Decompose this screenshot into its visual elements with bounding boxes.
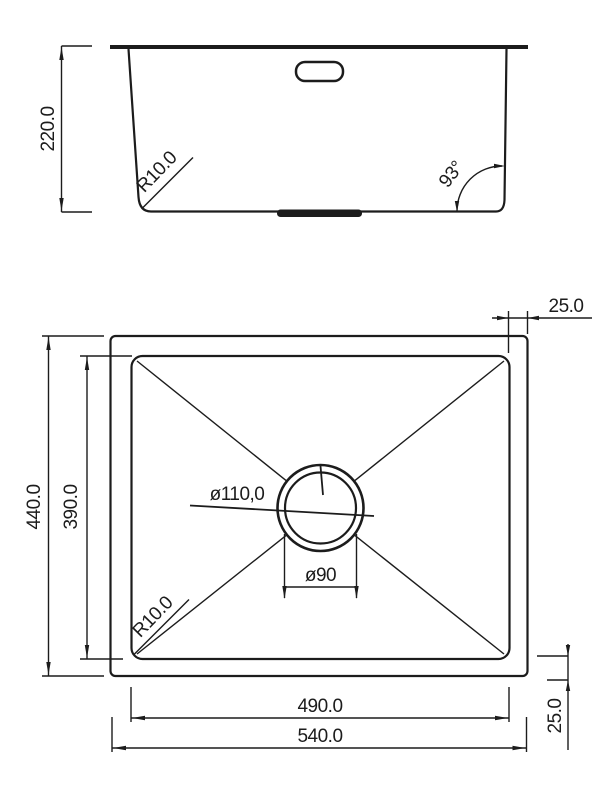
- arrowhead-down: [354, 586, 358, 599]
- arrowhead-right: [513, 746, 526, 750]
- plan-rim-offset-bottom-label: 25.0: [545, 699, 566, 734]
- side-view: 220.0 R10.0 93°: [38, 46, 528, 217]
- side-view-corner-radius-label: R10.0: [133, 148, 182, 197]
- arrowhead-right: [497, 316, 509, 320]
- arrowhead: [494, 164, 505, 168]
- diagonal-bottom-right: [354, 535, 504, 654]
- leader-line: [190, 506, 374, 517]
- plan-drain-center-tick: [321, 466, 324, 495]
- drawing-canvas: 220.0 R10.0 93°: [0, 0, 615, 800]
- plan-bowl-width-label: 490.0: [297, 696, 342, 717]
- plan-bowl-diagonals: [137, 361, 504, 654]
- plan-drain-outer-diameter-label: ø110,0: [210, 484, 265, 505]
- side-view-height-label: 220.0: [38, 106, 59, 151]
- plan-corner-radius-callout: R10.0: [129, 593, 189, 655]
- arrowhead: [455, 201, 459, 212]
- arrowhead-up: [46, 337, 50, 350]
- plan-drain-outer-circle: [278, 465, 364, 551]
- plan-bowl-width-dimension: 490.0: [131, 687, 509, 722]
- plan-bowl-depth-label: 390.0: [61, 484, 82, 529]
- arrowhead-left: [132, 716, 145, 720]
- side-view-height-dimension: 220.0: [38, 46, 92, 212]
- diagonal-top-right: [354, 361, 504, 481]
- arrowhead-down: [282, 586, 286, 599]
- plan-overall-width-label: 540.0: [297, 726, 342, 747]
- plan-corner-radius-label: R10.0: [129, 593, 178, 642]
- arrowhead-down: [46, 662, 50, 675]
- plan-overall-width-dimension: 540.0: [112, 717, 527, 752]
- arrowhead-up: [566, 680, 570, 691]
- arrowhead-up: [85, 357, 89, 370]
- side-view-corner-radius-callout: R10.0: [133, 148, 193, 209]
- plan-rim-offset-top-dimension: 25.0: [492, 296, 592, 353]
- side-view-overflow-hole: [296, 62, 343, 81]
- arrowhead-up: [59, 47, 63, 60]
- plan-overall-depth-label: 440.0: [24, 484, 45, 529]
- arrowhead-down: [566, 645, 570, 656]
- side-view-wall-angle-callout: 93°: [435, 157, 505, 212]
- plan-drain-cutout-label: ø90: [305, 565, 336, 586]
- plan-rim-offset-bottom-dimension: 25.0: [537, 644, 570, 750]
- arrowhead-down: [85, 645, 89, 658]
- arrowhead-right: [495, 716, 508, 720]
- arrowhead-down: [59, 198, 63, 211]
- plan-drain-inner-circle: [285, 473, 356, 544]
- sink-dimension-drawing: 220.0 R10.0 93°: [0, 0, 615, 800]
- plan-view: ø110,0 ø90 R10.0 440.0: [24, 296, 592, 752]
- plan-rim-offset-top-label: 25.0: [549, 296, 584, 317]
- arrowhead-left: [528, 316, 540, 320]
- arrowhead-left: [113, 746, 126, 750]
- side-view-drain-strip: [277, 210, 362, 218]
- diagonal-top-left: [137, 361, 287, 481]
- plan-bowl-depth-dimension: 390.0: [61, 356, 132, 659]
